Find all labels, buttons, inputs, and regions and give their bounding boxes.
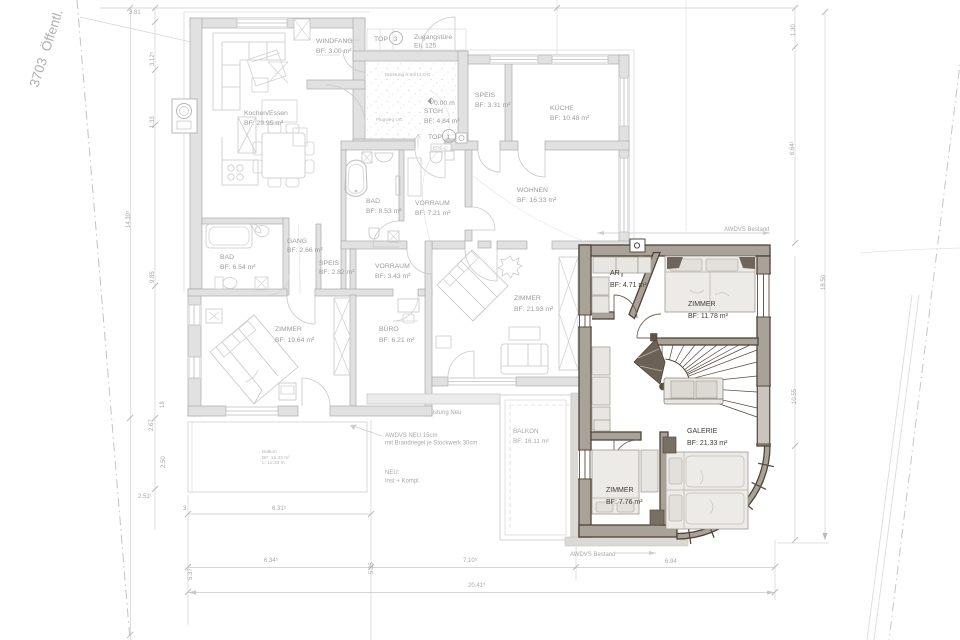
svg-text:18: 18 — [160, 401, 166, 408]
svg-text:BF: 3.43 m²: BF: 3.43 m² — [375, 273, 411, 280]
svg-text:BF: 29.95 m²: BF: 29.95 m² — [244, 120, 284, 127]
svg-text:BALKON: BALKON — [513, 428, 539, 435]
svg-text:BF: 2.82 m²: BF: 2.82 m² — [319, 269, 355, 276]
svg-text:NEU:: NEU: — [385, 470, 400, 476]
svg-text:BF: 10.48 m²: BF: 10.48 m² — [550, 115, 590, 122]
svg-text:AR: AR — [610, 270, 620, 277]
svg-text:BF: 11.78 m²: BF: 11.78 m² — [688, 313, 729, 320]
svg-text:VORRAUM: VORRAUM — [375, 263, 410, 270]
svg-text:BF: 2.66 m²: BF: 2.66 m² — [287, 247, 323, 254]
svg-text:AWDVS Bestand: AWDVS Bestand — [570, 552, 615, 558]
svg-text:3.81: 3.81 — [129, 10, 141, 16]
svg-text:1.33: 1.33 — [150, 116, 156, 128]
svg-text:BF: 6.54 m²: BF: 6.54 m² — [220, 264, 256, 271]
svg-text:ZIMMER: ZIMMER — [606, 487, 634, 494]
svg-text:10.55: 10.55 — [792, 388, 798, 404]
svg-text:ZIMMER: ZIMMER — [688, 301, 716, 308]
svg-text:BF: 7.21 m²: BF: 7.21 m² — [415, 210, 451, 217]
svg-text:Zugangstüre: Zugangstüre — [414, 34, 452, 41]
svg-text:Flugweg UG: Flugweg UG — [376, 117, 403, 123]
svg-text:7.10⁵: 7.10⁵ — [463, 557, 478, 564]
svg-text:TOP: TOP — [428, 134, 442, 141]
svg-text:6.64¹: 6.64¹ — [790, 141, 796, 155]
svg-text:BAD: BAD — [220, 254, 234, 261]
svg-text:BF: 8.53 m²: BF: 8.53 m² — [366, 208, 402, 215]
svg-text:mit Brandriegel je Stockwerk 3: mit Brandriegel je Stockwerk 30cm — [385, 441, 477, 447]
svg-text:BF: 3.31 m²: BF: 3.31 m² — [475, 102, 511, 109]
svg-text:STGH: STGH — [424, 108, 443, 115]
svg-text:BF: 4.84 m²: BF: 4.84 m² — [424, 118, 460, 125]
svg-text:2.67: 2.67 — [149, 419, 155, 431]
svg-text:20.41⁵: 20.41⁵ — [468, 582, 486, 589]
svg-text:5.35: 5.35 — [369, 562, 375, 574]
svg-text:18.50: 18.50 — [821, 274, 827, 290]
svg-text:3.12⁵: 3.12⁵ — [149, 51, 156, 66]
svg-text:6.34⁵: 6.34⁵ — [264, 557, 279, 564]
svg-text:6.31⁵: 6.31⁵ — [272, 505, 287, 512]
svg-text:ZIMMER: ZIMMER — [275, 326, 302, 333]
svg-text:1: 1 — [447, 134, 451, 141]
svg-text:14.30⁵: 14.30⁵ — [125, 210, 132, 228]
svg-text:2.50: 2.50 — [161, 456, 167, 468]
svg-text:BF: 16.11 m²: BF: 16.11 m² — [513, 438, 549, 445]
svg-text:BF: 19.64 m²: BF: 19.64 m² — [275, 337, 315, 344]
svg-text:BÜRO: BÜRO — [379, 325, 399, 333]
svg-text:GANG: GANG — [287, 238, 307, 245]
svg-text:Kochen/Essen: Kochen/Essen — [244, 110, 288, 117]
svg-text:Brüstung h:94/12 OG: Brüstung h:94/12 OG — [385, 72, 431, 78]
svg-text:BF: 16.33 m²: BF: 16.33 m² — [517, 197, 557, 204]
svg-text:BF: 21.93 m²: BF: 21.93 m² — [514, 306, 554, 313]
svg-text:TOP: TOP — [374, 36, 388, 43]
svg-text:Balkon: Balkon — [262, 449, 277, 455]
svg-text:BAD: BAD — [366, 198, 380, 205]
svg-text:ZIMMER: ZIMMER — [514, 295, 541, 302]
svg-text:SPEIS: SPEIS — [319, 260, 339, 267]
svg-text:3: 3 — [394, 36, 398, 43]
svg-text:VORRAUM: VORRAUM — [415, 200, 450, 207]
svg-text:1.30: 1.30 — [791, 24, 797, 36]
svg-text:WINDFANG: WINDFANG — [316, 38, 353, 45]
svg-text:EI₂ 125: EI₂ 125 — [414, 43, 437, 50]
svg-text:GALERIE: GALERIE — [687, 428, 718, 435]
svg-text:AWDVS NEU 15cm: AWDVS NEU 15cm — [385, 433, 437, 439]
svg-text:9.85: 9.85 — [150, 271, 156, 283]
svg-text:BF: 4.71 m²: BF: 4.71 m² — [610, 282, 647, 289]
svg-text:KÜCHE: KÜCHE — [550, 104, 574, 112]
svg-text:Inst + Kompl.: Inst + Kompl. — [385, 479, 421, 485]
svg-text:2.51¹: 2.51¹ — [138, 494, 152, 500]
svg-text:BF: 7.76 m²: BF: 7.76 m² — [606, 499, 643, 506]
svg-text:6.94: 6.94 — [665, 559, 677, 565]
svg-text:BF: 6.21 m²: BF: 6.21 m² — [379, 337, 415, 344]
svg-text:L: 12.33 m: L: 12.33 m — [262, 460, 285, 466]
svg-text:AWDVS Bestand: AWDVS Bestand — [724, 227, 769, 233]
svg-text:BF: 3.00 m²: BF: 3.00 m² — [316, 48, 352, 55]
svg-text:BF: 21.33 m²: BF: 21.33 m² — [687, 440, 728, 447]
svg-text:WOHNEN: WOHNEN — [517, 187, 548, 194]
svg-text:5.37: 5.37 — [188, 568, 194, 580]
svg-text:SPEIS: SPEIS — [475, 92, 495, 99]
svg-text:0.00 m: 0.00 m — [434, 100, 455, 107]
